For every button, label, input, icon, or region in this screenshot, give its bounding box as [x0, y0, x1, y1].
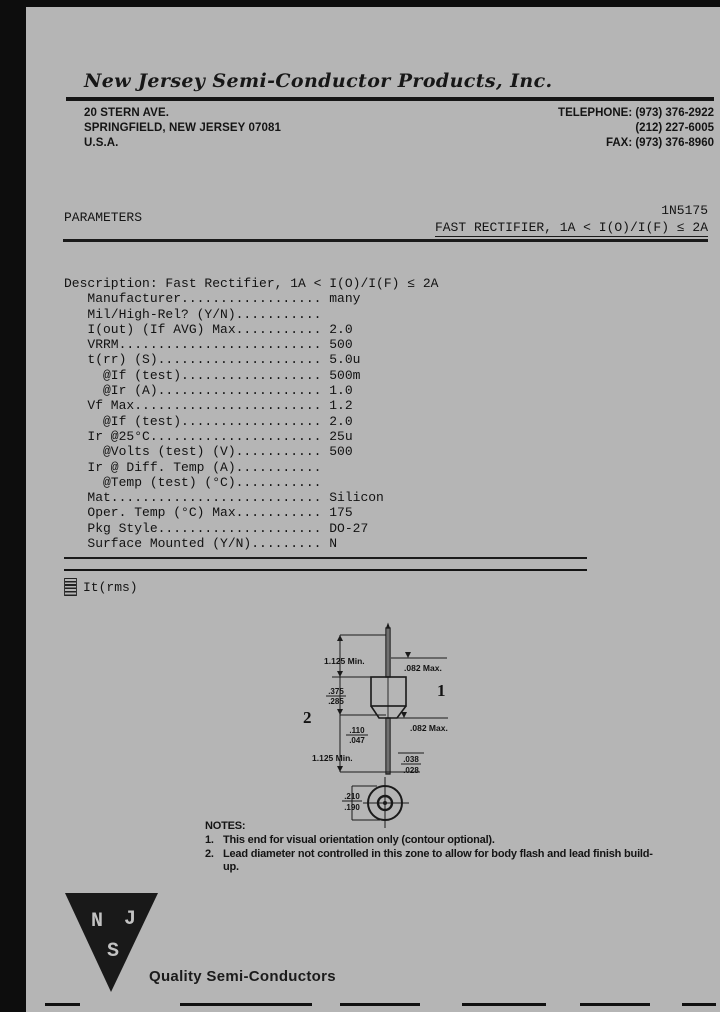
dim-bottom-lead-length: 1.125 Min. — [312, 753, 353, 763]
part-number: 1N5175 — [360, 203, 708, 218]
parameter-line: @If (test).................. 2.0 — [64, 414, 438, 429]
logo-letter-s: S — [107, 940, 119, 963]
address-line-1: 20 STERN AVE. — [84, 106, 281, 121]
package-outline-drawing: 1.125 Min. .082 Max. 1 2 .375 .285 .110 … — [280, 612, 500, 845]
parameter-line: @Temp (test) (°C)........... — [64, 475, 438, 490]
scan-line-segment — [180, 1003, 312, 1006]
separator-rule-lower — [64, 569, 587, 571]
header-rule — [66, 97, 714, 101]
scan-line-segment — [45, 1003, 80, 1006]
parameter-line: Manufacturer.................. many — [64, 291, 438, 306]
hatch-marker-icon — [64, 578, 77, 596]
company-name: New Jersey Semi-Conductor Products, Inc. — [84, 70, 553, 92]
scan-line-segment — [682, 1003, 716, 1006]
title-rule — [63, 239, 708, 242]
nsj-logo: N J S — [60, 890, 163, 1000]
logo-tagline: Quality Semi-Conductors — [149, 968, 336, 985]
scan-line-segment — [462, 1003, 546, 1006]
dim-body-length-num: .375 — [328, 687, 344, 696]
logo-letter-j: J — [124, 908, 136, 931]
company-address: 20 STERN AVE. SPRINGFIELD, NEW JERSEY 07… — [84, 106, 281, 150]
section-label: PARAMETERS — [64, 210, 142, 225]
phone-line-2: (212) 227-6005 — [420, 121, 714, 136]
scan-border-top — [0, 0, 720, 7]
company-contact: TELEPHONE: (973) 376-2922 (212) 227-6005… — [420, 106, 714, 150]
dim-upper-lead-dia: .082 Max. — [404, 663, 442, 673]
notes-block: NOTES: 1. This end for visual orientatio… — [205, 820, 675, 874]
parameter-line: Vf Max........................ 1.2 — [64, 398, 438, 413]
datasheet-page: New Jersey Semi-Conductor Products, Inc.… — [0, 0, 720, 1012]
callout-1: 1 — [437, 681, 446, 700]
separator-rule-upper — [64, 557, 587, 559]
note-item: 1. This end for visual orientation only … — [205, 834, 675, 847]
parameter-line: Mil/High-Rel? (Y/N)........... — [64, 307, 438, 322]
dim-end-view-den: .190 — [344, 803, 360, 812]
note-text: This end for visual orientation only (co… — [223, 834, 667, 847]
dim-end-view-num: .210 — [344, 792, 360, 801]
parameter-line: I(out) (If AVG) Max........... 2.0 — [64, 322, 438, 337]
address-line-3: U.S.A. — [84, 136, 281, 151]
package-drawing-svg: 1.125 Min. .082 Max. 1 2 .375 .285 .110 … — [280, 612, 500, 840]
dim-top-lead-length: 1.125 Min. — [324, 656, 365, 666]
dim-lower-lead-dia: .082 Max. — [410, 723, 448, 733]
notes-heading: NOTES: — [205, 820, 675, 833]
scan-line-segment — [580, 1003, 650, 1006]
scan-line-segment — [340, 1003, 420, 1006]
parameter-line: Ir @ Diff. Temp (A)........... — [64, 460, 438, 475]
note-number: 2. — [205, 848, 217, 874]
parameter-line: Description: Fast Rectifier, 1A < I(O)/I… — [64, 276, 438, 291]
scan-border-left — [0, 0, 26, 1012]
device-subtitle: FAST RECTIFIER, 1A < I(O)/I(F) ≤ 2A — [360, 220, 708, 235]
footnote-text: It(rms) — [83, 580, 138, 595]
parameter-line: t(rr) (S)..................... 5.0u — [64, 352, 438, 367]
parameters-list: Description: Fast Rectifier, 1A < I(O)/I… — [64, 276, 438, 551]
parameter-line: Surface Mounted (Y/N)......... N — [64, 536, 438, 551]
parameter-line: @Volts (test) (V)........... 500 — [64, 444, 438, 459]
nsj-triangle-logo-icon: N J S — [60, 890, 163, 995]
note-text: Lead diameter not controlled in this zon… — [223, 848, 667, 874]
dim-zone-den: .047 — [349, 736, 365, 745]
parameter-line: Oper. Temp (°C) Max........... 175 — [64, 505, 438, 520]
dim-zone-num: .110 — [349, 726, 365, 735]
address-line-2: SPRINGFIELD, NEW JERSEY 07081 — [84, 121, 281, 136]
parameter-line: Pkg Style..................... DO-27 — [64, 521, 438, 536]
note-item: 2. Lead diameter not controlled in this … — [205, 848, 675, 874]
dim-lead-finish-den: .028 — [403, 766, 419, 775]
parameter-line: Mat........................... Silicon — [64, 490, 438, 505]
parameter-line: @Ir (A)..................... 1.0 — [64, 383, 438, 398]
parameter-line: VRRM.......................... 500 — [64, 337, 438, 352]
parameter-line: Ir @25°C...................... 25u — [64, 429, 438, 444]
dim-body-length-den: .285 — [328, 697, 344, 706]
fax-line: FAX: (973) 376-8960 — [420, 136, 714, 151]
phone-line-1: TELEPHONE: (973) 376-2922 — [420, 106, 714, 121]
logo-letter-n: N — [91, 910, 103, 933]
note-number: 1. — [205, 834, 217, 847]
dim-lead-finish-num: .038 — [403, 755, 419, 764]
parameter-line: @If (test).................. 500m — [64, 368, 438, 383]
callout-2: 2 — [303, 708, 312, 727]
